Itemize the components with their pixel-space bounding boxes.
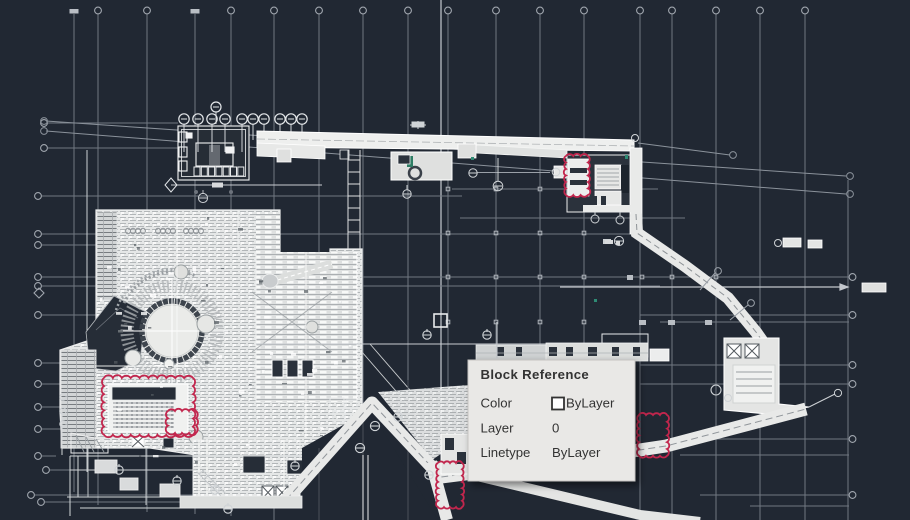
svg-text:ByLayer: ByLayer	[552, 445, 601, 460]
svg-text:0: 0	[552, 421, 559, 436]
svg-text:Block Reference: Block Reference	[481, 367, 590, 382]
svg-text:ByLayer: ByLayer	[566, 396, 615, 411]
svg-text:Linetype: Linetype	[481, 445, 531, 460]
svg-text:Color: Color	[481, 396, 513, 411]
svg-text:Layer: Layer	[481, 421, 515, 436]
